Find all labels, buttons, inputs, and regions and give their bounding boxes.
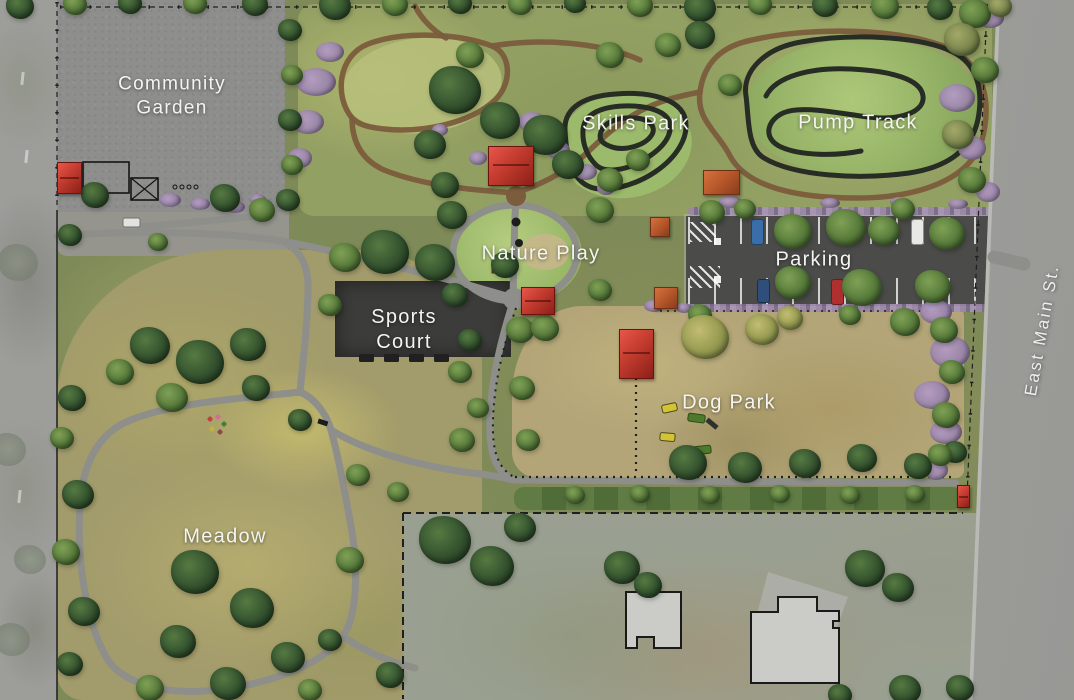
tree xyxy=(130,327,170,364)
tree xyxy=(271,642,305,673)
tree xyxy=(470,546,514,586)
tree xyxy=(597,168,623,192)
tree xyxy=(531,315,559,341)
garden-shelter xyxy=(57,162,82,194)
tree xyxy=(552,150,584,179)
tree xyxy=(336,547,364,573)
car xyxy=(123,218,140,227)
shrub xyxy=(948,199,968,209)
parked-car-white xyxy=(911,219,924,245)
tree xyxy=(506,317,534,343)
tree xyxy=(467,398,489,418)
tree xyxy=(634,572,662,598)
tree xyxy=(480,102,520,139)
shrub xyxy=(159,193,181,207)
tree xyxy=(176,340,224,384)
tree xyxy=(774,214,812,249)
tree xyxy=(882,573,914,602)
label-sports-court: Sports Court xyxy=(357,305,452,355)
tree xyxy=(298,679,322,700)
tree xyxy=(789,449,821,478)
picnic-shelter xyxy=(650,217,670,237)
tree xyxy=(826,209,866,246)
tree xyxy=(329,243,361,272)
tree xyxy=(839,305,861,325)
shrub xyxy=(939,84,975,112)
tree xyxy=(249,198,275,222)
tree xyxy=(699,200,725,224)
picnic-gathering xyxy=(203,413,231,439)
tree xyxy=(431,172,459,198)
label-community-garden: Community Garden xyxy=(97,72,247,120)
tree xyxy=(278,109,302,131)
tree xyxy=(777,306,803,330)
gate-marker xyxy=(957,485,970,508)
shrub xyxy=(190,198,210,210)
walkways xyxy=(57,196,1024,692)
tree xyxy=(14,545,46,574)
tree xyxy=(57,652,83,676)
tree xyxy=(288,409,312,431)
tree xyxy=(840,486,860,504)
tree xyxy=(681,315,729,359)
tree xyxy=(596,42,624,68)
tree xyxy=(276,189,300,211)
tree xyxy=(728,452,762,483)
tree xyxy=(509,376,535,400)
label-dog-park: Dog Park xyxy=(682,391,776,416)
tree xyxy=(905,485,925,503)
tree xyxy=(318,294,342,316)
tree xyxy=(586,197,614,223)
tree xyxy=(242,375,270,401)
label-skills-park: Skills Park xyxy=(582,112,690,137)
tree xyxy=(52,539,80,565)
tree xyxy=(449,428,475,452)
tree xyxy=(745,314,779,345)
shrub xyxy=(820,198,840,208)
tree xyxy=(685,21,715,49)
tree xyxy=(971,57,999,83)
tree xyxy=(414,130,446,159)
tree xyxy=(930,317,958,343)
tree xyxy=(210,184,240,212)
tree xyxy=(944,23,980,56)
tree xyxy=(891,198,915,220)
tree xyxy=(504,513,536,542)
tree xyxy=(915,270,951,303)
tree xyxy=(456,42,484,68)
parked-car-navy xyxy=(757,279,770,303)
tree xyxy=(230,588,274,628)
tree xyxy=(942,120,974,149)
shrub xyxy=(316,42,344,62)
tree xyxy=(419,516,471,564)
tree xyxy=(718,74,742,96)
label-meadow: Meadow xyxy=(183,525,266,550)
tree xyxy=(700,486,720,504)
tree xyxy=(148,233,168,251)
tree xyxy=(106,359,134,385)
tree xyxy=(669,445,707,480)
tree xyxy=(58,224,82,246)
tree xyxy=(958,167,986,193)
tree xyxy=(928,444,952,466)
tree xyxy=(81,182,109,208)
tree xyxy=(230,328,266,361)
tree xyxy=(770,485,790,503)
tree xyxy=(630,485,650,503)
tree xyxy=(429,66,481,114)
label-pump-track: Pump Track xyxy=(798,111,918,136)
tree xyxy=(929,217,965,250)
skills-park-shelter xyxy=(488,146,534,186)
tree xyxy=(939,360,965,384)
dog-park-shelter xyxy=(619,329,654,379)
tree xyxy=(448,361,472,383)
picnic-shelter xyxy=(654,287,678,309)
tree xyxy=(946,675,974,700)
park-site-plan: Community Garden Skills Park Pump Track … xyxy=(0,0,1074,700)
shrub xyxy=(469,151,487,165)
tree xyxy=(387,482,409,502)
parked-car-blue xyxy=(751,219,764,245)
tree xyxy=(734,199,756,219)
tree xyxy=(58,385,86,411)
label-nature-play: Nature Play xyxy=(482,242,601,267)
tree xyxy=(62,480,94,509)
tree xyxy=(376,662,404,688)
tree xyxy=(160,625,196,658)
tree xyxy=(136,675,164,700)
tree xyxy=(655,33,681,57)
tree xyxy=(516,429,540,451)
tree xyxy=(281,155,303,175)
tree xyxy=(626,149,650,171)
tree xyxy=(842,269,882,306)
tree xyxy=(278,19,302,41)
tree xyxy=(458,329,482,351)
tree xyxy=(210,667,246,700)
trailhead-pad xyxy=(506,186,526,206)
tree xyxy=(437,201,467,229)
tree xyxy=(847,444,877,472)
pump-track-shelter xyxy=(703,170,740,195)
tree xyxy=(890,308,920,336)
label-parking: Parking xyxy=(776,248,853,273)
tree xyxy=(361,230,409,274)
plaza-shelter xyxy=(521,287,555,315)
tree xyxy=(281,65,303,85)
tree xyxy=(346,464,370,486)
tree xyxy=(565,486,585,504)
tree xyxy=(889,675,921,700)
tree xyxy=(932,402,960,428)
tree xyxy=(845,550,885,587)
tree xyxy=(171,550,219,594)
tree xyxy=(442,283,468,307)
tree xyxy=(68,597,100,626)
tree xyxy=(318,629,342,651)
tree xyxy=(50,427,74,449)
court-benches xyxy=(359,354,449,362)
tree xyxy=(588,279,612,301)
tree xyxy=(415,244,455,281)
tree xyxy=(868,216,900,245)
tree xyxy=(156,383,188,412)
